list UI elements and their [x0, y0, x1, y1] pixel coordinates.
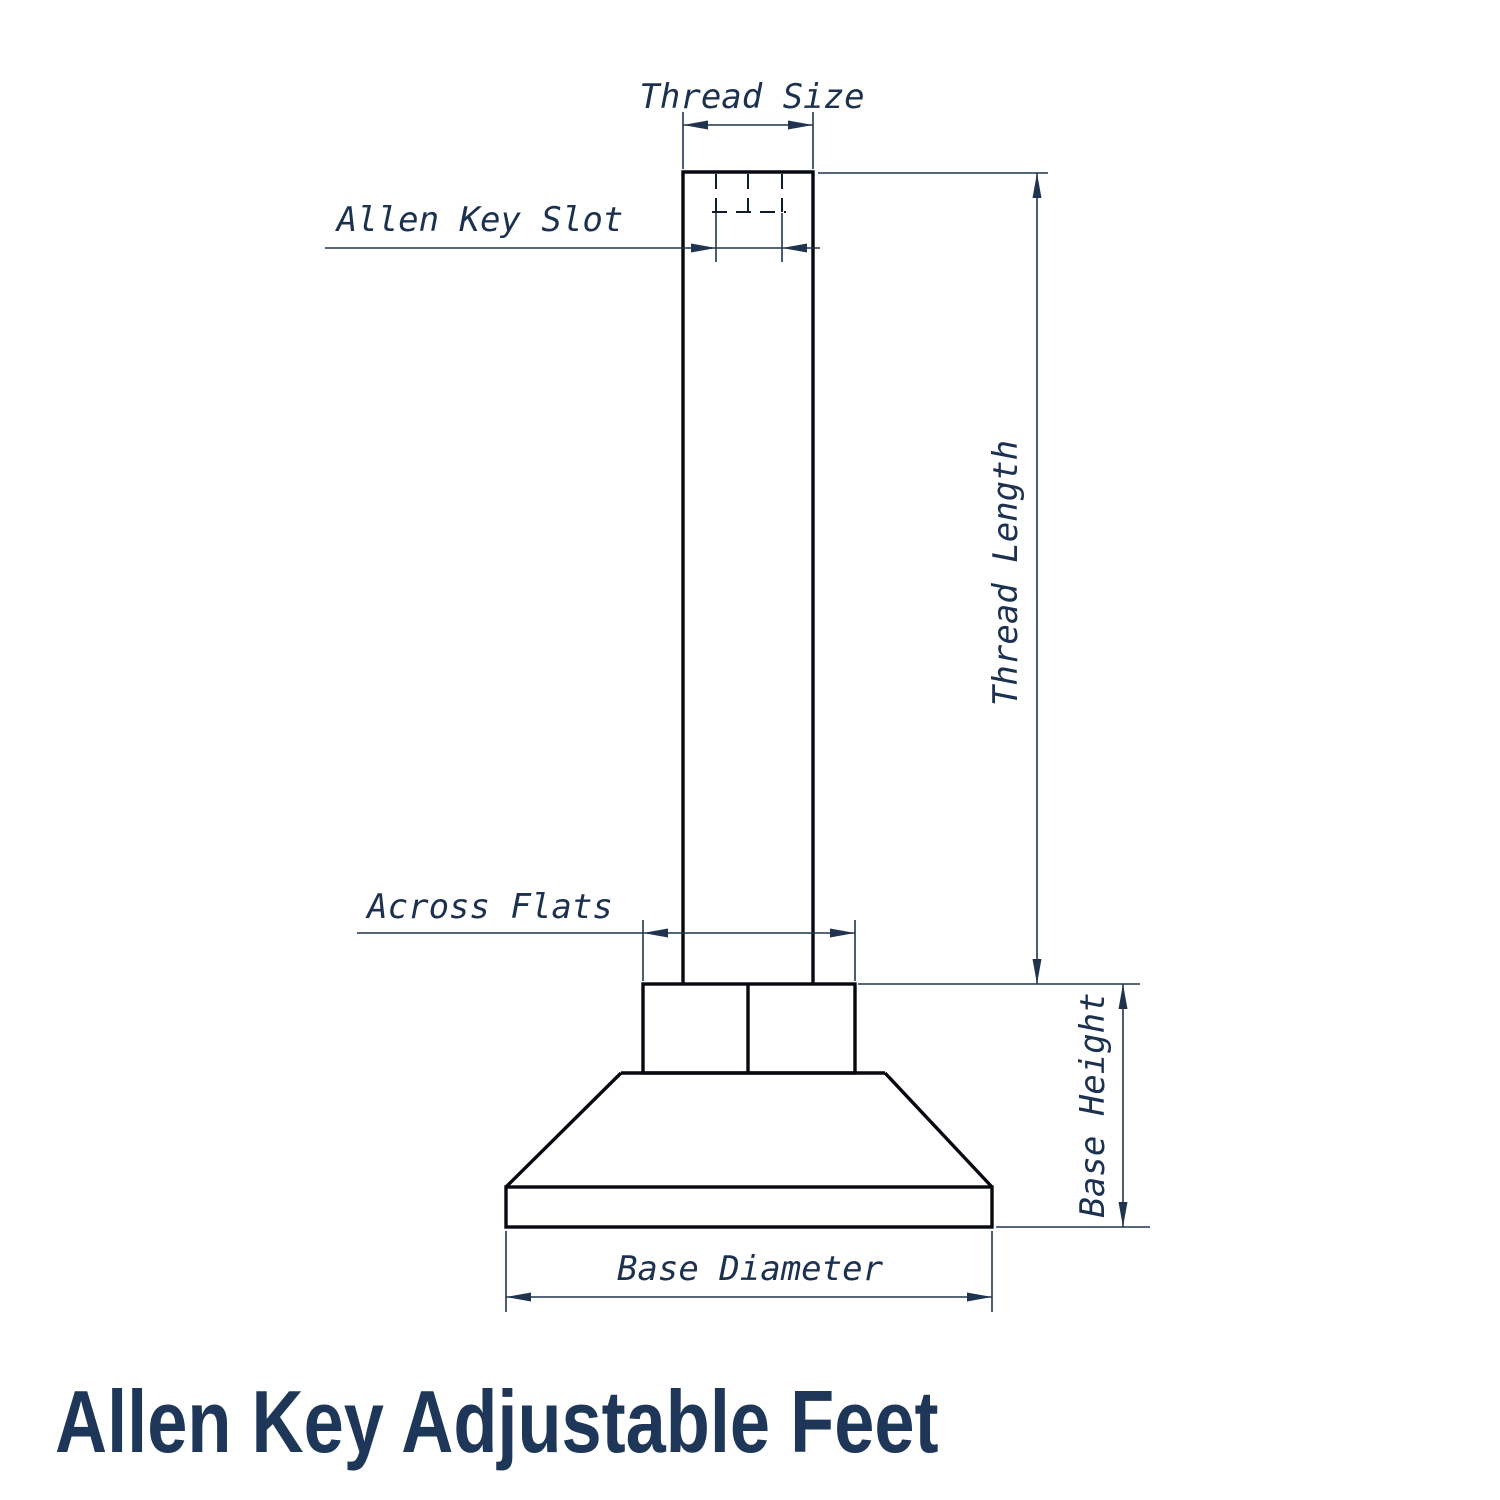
arrowhead-left: [506, 1293, 531, 1302]
thread-length-label: Thread Length: [986, 440, 1026, 706]
arrowhead-right: [967, 1293, 992, 1302]
cone-right-slant: [885, 1073, 992, 1187]
thread-size-dimension: [683, 112, 813, 169]
arrowhead-up: [1033, 173, 1042, 198]
across-flats-dimension: [357, 920, 855, 981]
arrowhead-down: [1119, 1202, 1128, 1227]
arrowhead-left: [691, 244, 716, 253]
across-flats-label: Across Flats: [365, 887, 613, 927]
arrowhead-right: [830, 929, 855, 938]
threaded-rod-outline: [683, 172, 813, 984]
arrowhead-up: [1119, 984, 1128, 1009]
arrowhead-right: [788, 121, 813, 130]
arrowhead-down: [1033, 959, 1042, 984]
arrowhead-right: [782, 244, 807, 253]
cone-left-slant: [506, 1073, 621, 1187]
arrowhead-left: [643, 929, 668, 938]
base-diameter-label: Base Diameter: [617, 1249, 884, 1289]
arrowhead-left: [683, 121, 708, 130]
thread-size-label: Thread Size: [639, 77, 864, 117]
drawing-canvas: Thread Size Allen Key Slot Thread Length…: [0, 0, 1500, 1500]
allen-key-slot-hidden-lines: [712, 174, 786, 218]
adjustable-foot-diagram: Thread Size Allen Key Slot Thread Length…: [0, 0, 1500, 1500]
page-title: Allen Key Adjustable Feet: [55, 1373, 938, 1471]
allen-key-slot-label: Allen Key Slot: [335, 200, 624, 240]
base-height-label: Base Height: [1073, 992, 1113, 1217]
base-plate-outline: [506, 1187, 992, 1227]
foot-outline: [506, 172, 992, 1227]
